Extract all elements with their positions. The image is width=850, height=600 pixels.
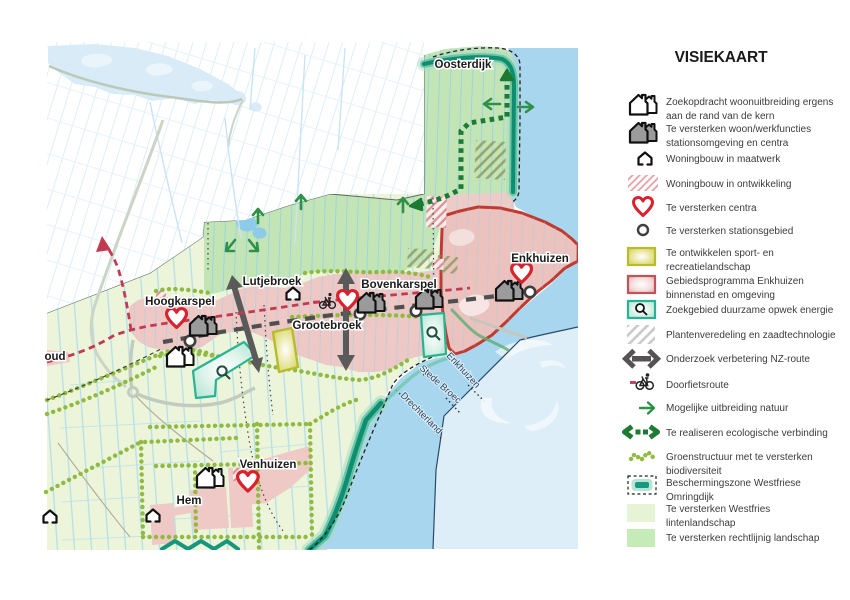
svg-text:Zoekopdracht woonuitbreiding e: Zoekopdracht woonuitbreiding ergens [666,97,833,108]
svg-text:Zoekgebied duurzame opwek ener: Zoekgebied duurzame opwek energie [666,305,834,316]
svg-text:Beschermingszone Westfriese: Beschermingszone Westfriese [666,478,801,489]
svg-text:Lutjebroek: Lutjebroek [243,276,302,288]
svg-text:Te realiseren ecologische verb: Te realiseren ecologische verbinding [666,428,828,439]
svg-text:Te ontwikkelen sport- en: Te ontwikkelen sport- en [666,248,774,259]
svg-text:Te versterken centra: Te versterken centra [666,203,757,214]
svg-text:Venhuizen: Venhuizen [240,459,297,471]
svg-text:lintenlandschap: lintenlandschap [666,518,736,529]
svg-text:Te versterken rechtlijnig land: Te versterken rechtlijnig landschap [666,533,820,544]
svg-text:recreatielandschap: recreatielandschap [666,262,751,273]
svg-text:Plantenveredeling en zaadtechn: Plantenveredeling en zaadtechnologie [666,330,836,341]
svg-text:Oosterdijk: Oosterdijk [435,59,492,71]
svg-text:Grootebroek: Grootebroek [292,320,362,332]
svg-text:Hoogkarspel: Hoogkarspel [145,296,215,308]
svg-text:Woningbouw in ontwikkeling: Woningbouw in ontwikkeling [666,179,791,190]
svg-text:Onderzoek verbetering NZ-route: Onderzoek verbetering NZ-route [666,354,810,365]
svg-text:Enkhuizen: Enkhuizen [511,253,569,265]
svg-text:Te versterken Westfries: Te versterken Westfries [666,504,770,515]
svg-text:Te versterken stationsgebied: Te versterken stationsgebied [666,226,793,237]
svg-text:Doorfietsroute: Doorfietsroute [666,380,729,391]
svg-text:VISIEKAART: VISIEKAART [675,49,769,66]
svg-text:oud: oud [44,351,65,363]
svg-text:Groenstructuur met te versterk: Groenstructuur met te versterken [666,452,813,463]
svg-text:Bovenkarspel: Bovenkarspel [361,279,436,291]
svg-text:Woningbouw in maatwerk: Woningbouw in maatwerk [666,154,781,165]
svg-text:stationsomgeving en centra: stationsomgeving en centra [666,138,789,149]
svg-text:Hem: Hem [177,495,202,507]
svg-text:Gebiedsprogramma Enkhuizen: Gebiedsprogramma Enkhuizen [666,276,804,287]
svg-text:aan de rand van de kern: aan de rand van de kern [666,111,774,122]
svg-text:Omringdijk: Omringdijk [666,492,715,503]
svg-text:Mogelijke uitbreiding natuur: Mogelijke uitbreiding natuur [666,403,789,414]
svg-text:Te versterken woon/werkfunctie: Te versterken woon/werkfuncties [666,124,811,135]
svg-text:biodiversiteit: biodiversiteit [666,466,722,477]
svg-text:binnenstad en omgeving: binnenstad en omgeving [666,290,775,301]
